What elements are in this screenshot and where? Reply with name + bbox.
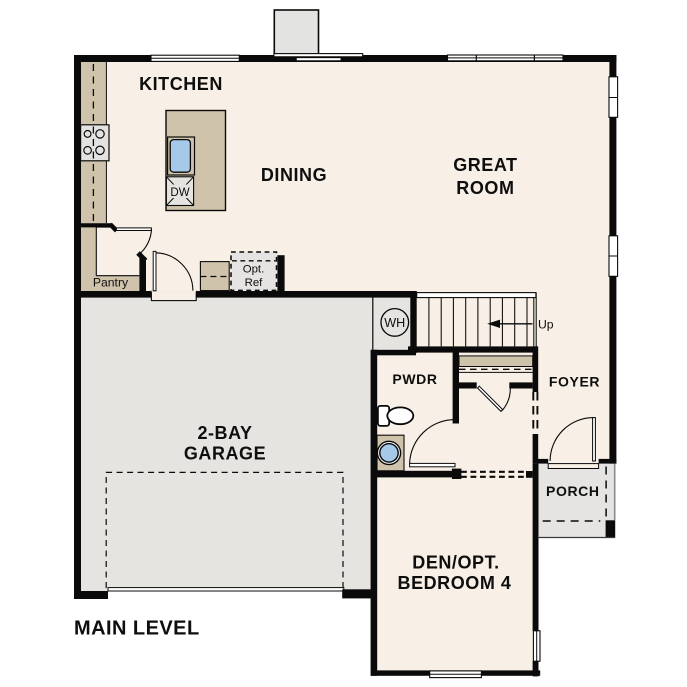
- svg-text:KITCHEN: KITCHEN: [139, 74, 223, 94]
- svg-text:Up: Up: [538, 317, 554, 331]
- svg-text:DW: DW: [170, 187, 189, 199]
- svg-text:WH: WH: [384, 316, 405, 330]
- svg-text:PORCH: PORCH: [546, 483, 600, 499]
- svg-text:Ref: Ref: [245, 277, 264, 289]
- svg-text:BEDROOM 4: BEDROOM 4: [398, 573, 512, 593]
- svg-text:GREAT: GREAT: [453, 155, 517, 175]
- svg-text:GARAGE: GARAGE: [184, 444, 266, 464]
- svg-text:DINING: DINING: [261, 165, 327, 185]
- svg-text:ROOM: ROOM: [456, 178, 514, 198]
- svg-text:Pantry: Pantry: [93, 276, 129, 290]
- svg-text:2-BAY: 2-BAY: [197, 423, 252, 443]
- svg-text:PWDR: PWDR: [392, 371, 437, 387]
- svg-text:FOYER: FOYER: [549, 373, 600, 389]
- svg-text:Opt.: Opt.: [243, 264, 265, 276]
- svg-text:MAIN LEVEL: MAIN LEVEL: [74, 618, 200, 640]
- svg-text:DEN/OPT.: DEN/OPT.: [412, 552, 499, 572]
